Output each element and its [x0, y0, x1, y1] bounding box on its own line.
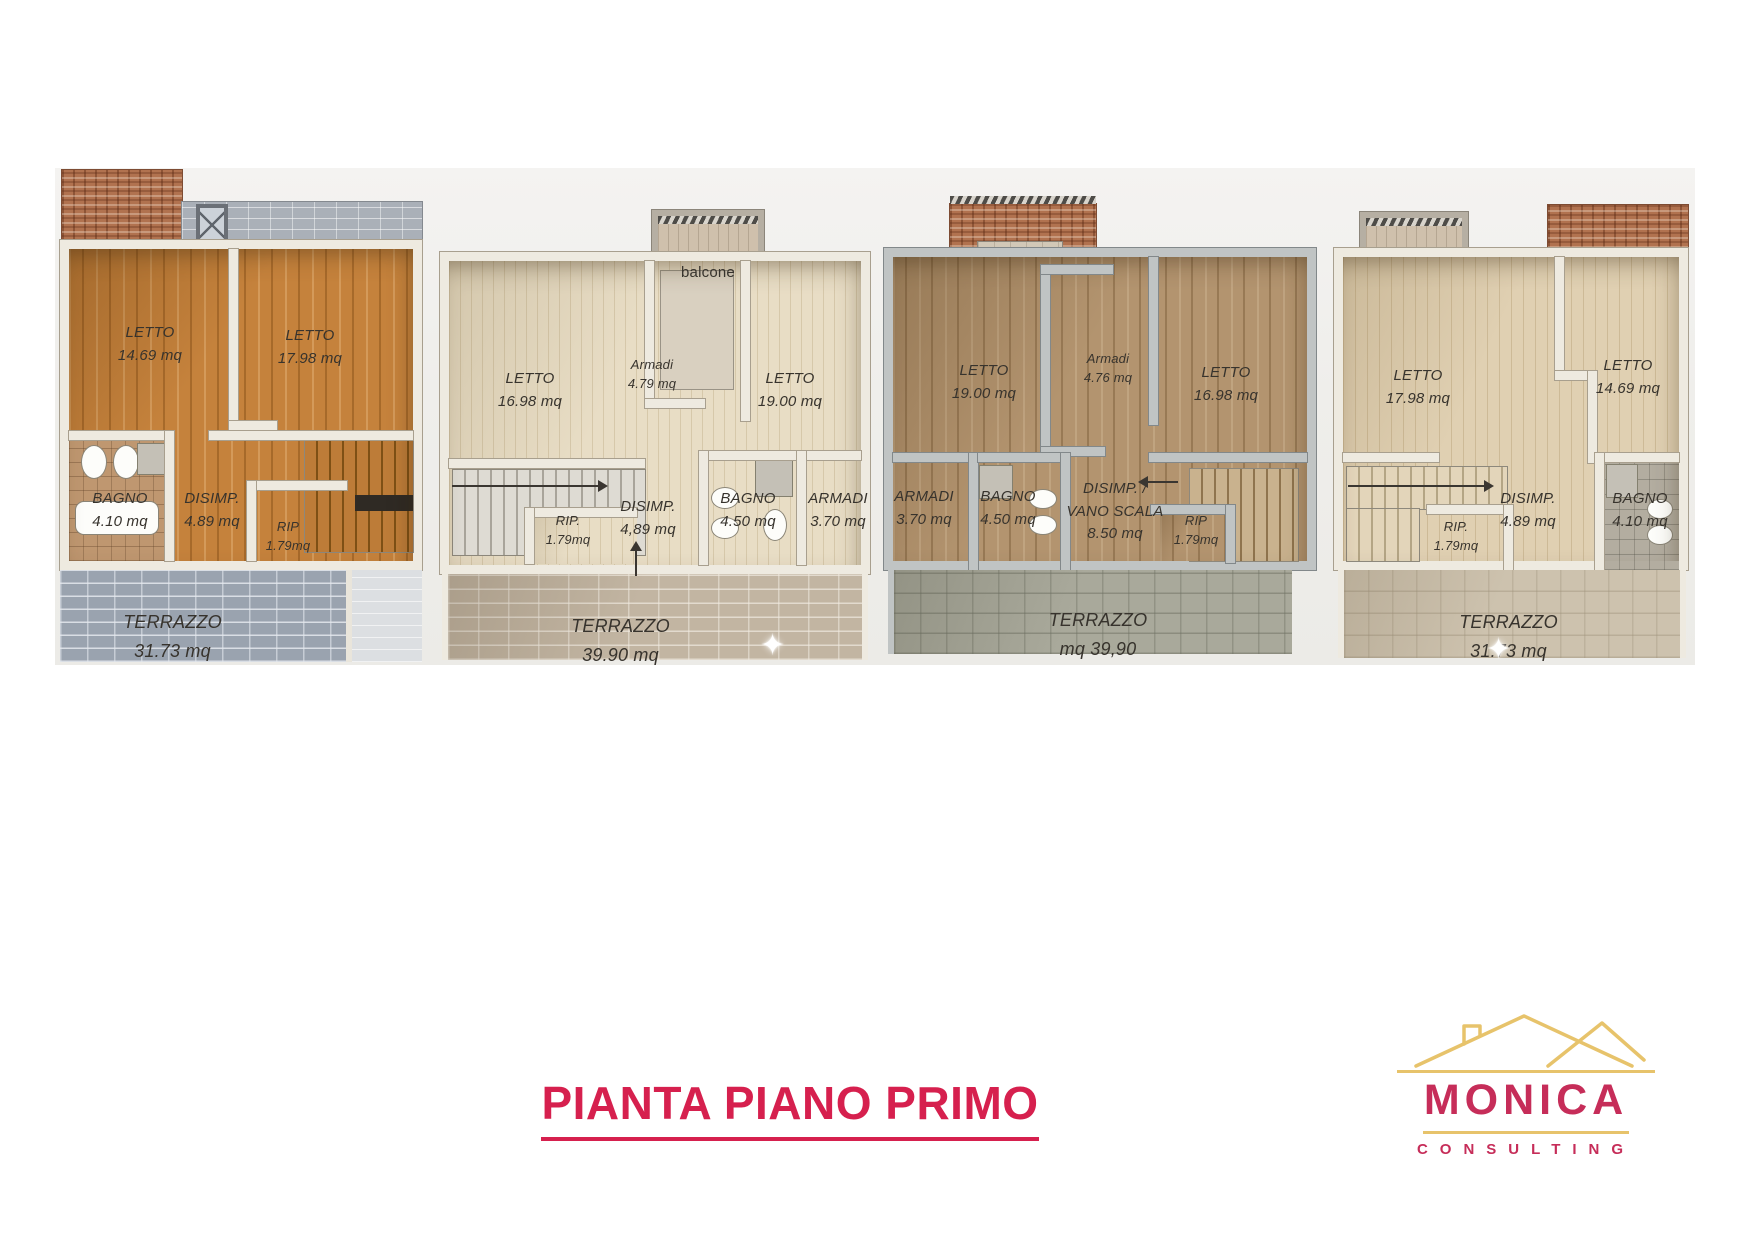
room-label-letto: LETTO17.98 mq [1356, 365, 1480, 410]
room-label-terrazzo: TERRAZZOmq 39,90 [1014, 606, 1182, 664]
wall [1595, 453, 1679, 462]
roof-edge [950, 196, 1096, 204]
room-label-terrazzo: TERRAZZO31.73 mq [100, 608, 245, 666]
room-label-letto: LETTO19.00 mq [728, 368, 852, 413]
entry-direction-arrow [635, 550, 637, 576]
room-label-rip: RIP1.79mq [246, 518, 330, 556]
sink-fixture [113, 445, 139, 479]
wall [1149, 453, 1307, 462]
wall [209, 431, 413, 440]
wall [229, 421, 277, 430]
stairs-direction-arrow [1148, 481, 1178, 483]
arrow-head-icon [630, 541, 642, 551]
wall [449, 459, 645, 468]
room-label-letto: LETTO19.00 mq [922, 360, 1046, 405]
balcony-label: balcone [656, 262, 760, 285]
room-label-terrazzo: TERRAZZO39.90 mq [548, 612, 693, 670]
room-label-bagno: BAGNO4.50 mq [696, 488, 800, 533]
room-label-armadi: ARMADI3.70 mq [788, 488, 888, 533]
unit1-roof [62, 170, 182, 242]
arrow-head-icon [598, 480, 608, 492]
room-label-letto: LETTO17.98 mq [248, 325, 372, 370]
room-label-letto: LETTO16.98 mq [1164, 362, 1288, 407]
room-label-disimp: DISIMP.4,89 mq [596, 496, 700, 541]
page-title: PIANTA PIANO PRIMO [541, 1076, 1038, 1141]
floor-plan-page: LETTO14.69 mq LETTO17.98 mq BAGNO4.10 mq… [0, 0, 1748, 1240]
room-label-bagno: BAGNO4.10 mq [70, 488, 170, 533]
company-logo: MONICA CONSULTING [1392, 1010, 1660, 1158]
room-label-rip: RIP1.79mq [1154, 512, 1238, 550]
room-label-letto: LETTO14.69 mq [88, 322, 212, 367]
unit4-staircase-lower [1347, 509, 1419, 561]
logo-rule [1397, 1070, 1655, 1073]
wall [1555, 257, 1564, 379]
wall [1149, 257, 1158, 425]
sink-fixture [81, 445, 107, 479]
stair-landing [355, 495, 413, 511]
sparkle-icon: ✦ [1486, 632, 1511, 667]
sparkle-icon: ✦ [760, 628, 785, 663]
room-label-armadi: Armadi4.76 mq [1056, 350, 1160, 388]
wall [69, 431, 169, 440]
arrow-head-icon [1484, 480, 1494, 492]
logo-tagline: CONSULTING [1392, 1141, 1660, 1158]
wall [229, 249, 238, 429]
unit1-terrace-side [352, 570, 422, 662]
balcony-railing [1366, 218, 1462, 226]
room-label-bagno: BAGNO4.50 mq [956, 486, 1060, 531]
stairs-direction-arrow [452, 485, 600, 487]
wall [699, 451, 861, 460]
wall [978, 453, 1070, 462]
page-title-wrap: PIANTA PIANO PRIMO [540, 1076, 1040, 1141]
room-label-letto: LETTO14.69 mq [1566, 355, 1690, 400]
room-label-rip: RIP.1.79mq [1414, 518, 1498, 556]
logo-rule [1423, 1131, 1629, 1134]
wall [1343, 453, 1439, 462]
wall [893, 453, 969, 462]
stairs-direction-arrow [1348, 485, 1486, 487]
room-label-bagno: BAGNO4.10 mq [1588, 488, 1692, 533]
logo-name: MONICA [1392, 1076, 1660, 1125]
room-label-armadi: Armadi4.79 mq [600, 356, 704, 394]
room-label-letto: LETTO16.98 mq [468, 368, 592, 413]
arrow-head-icon [1138, 476, 1148, 488]
shower-fixture [137, 443, 165, 475]
wall [1041, 265, 1113, 274]
balcony-railing [658, 216, 758, 224]
house-roof-icon [1406, 1010, 1646, 1068]
wall [645, 399, 705, 408]
